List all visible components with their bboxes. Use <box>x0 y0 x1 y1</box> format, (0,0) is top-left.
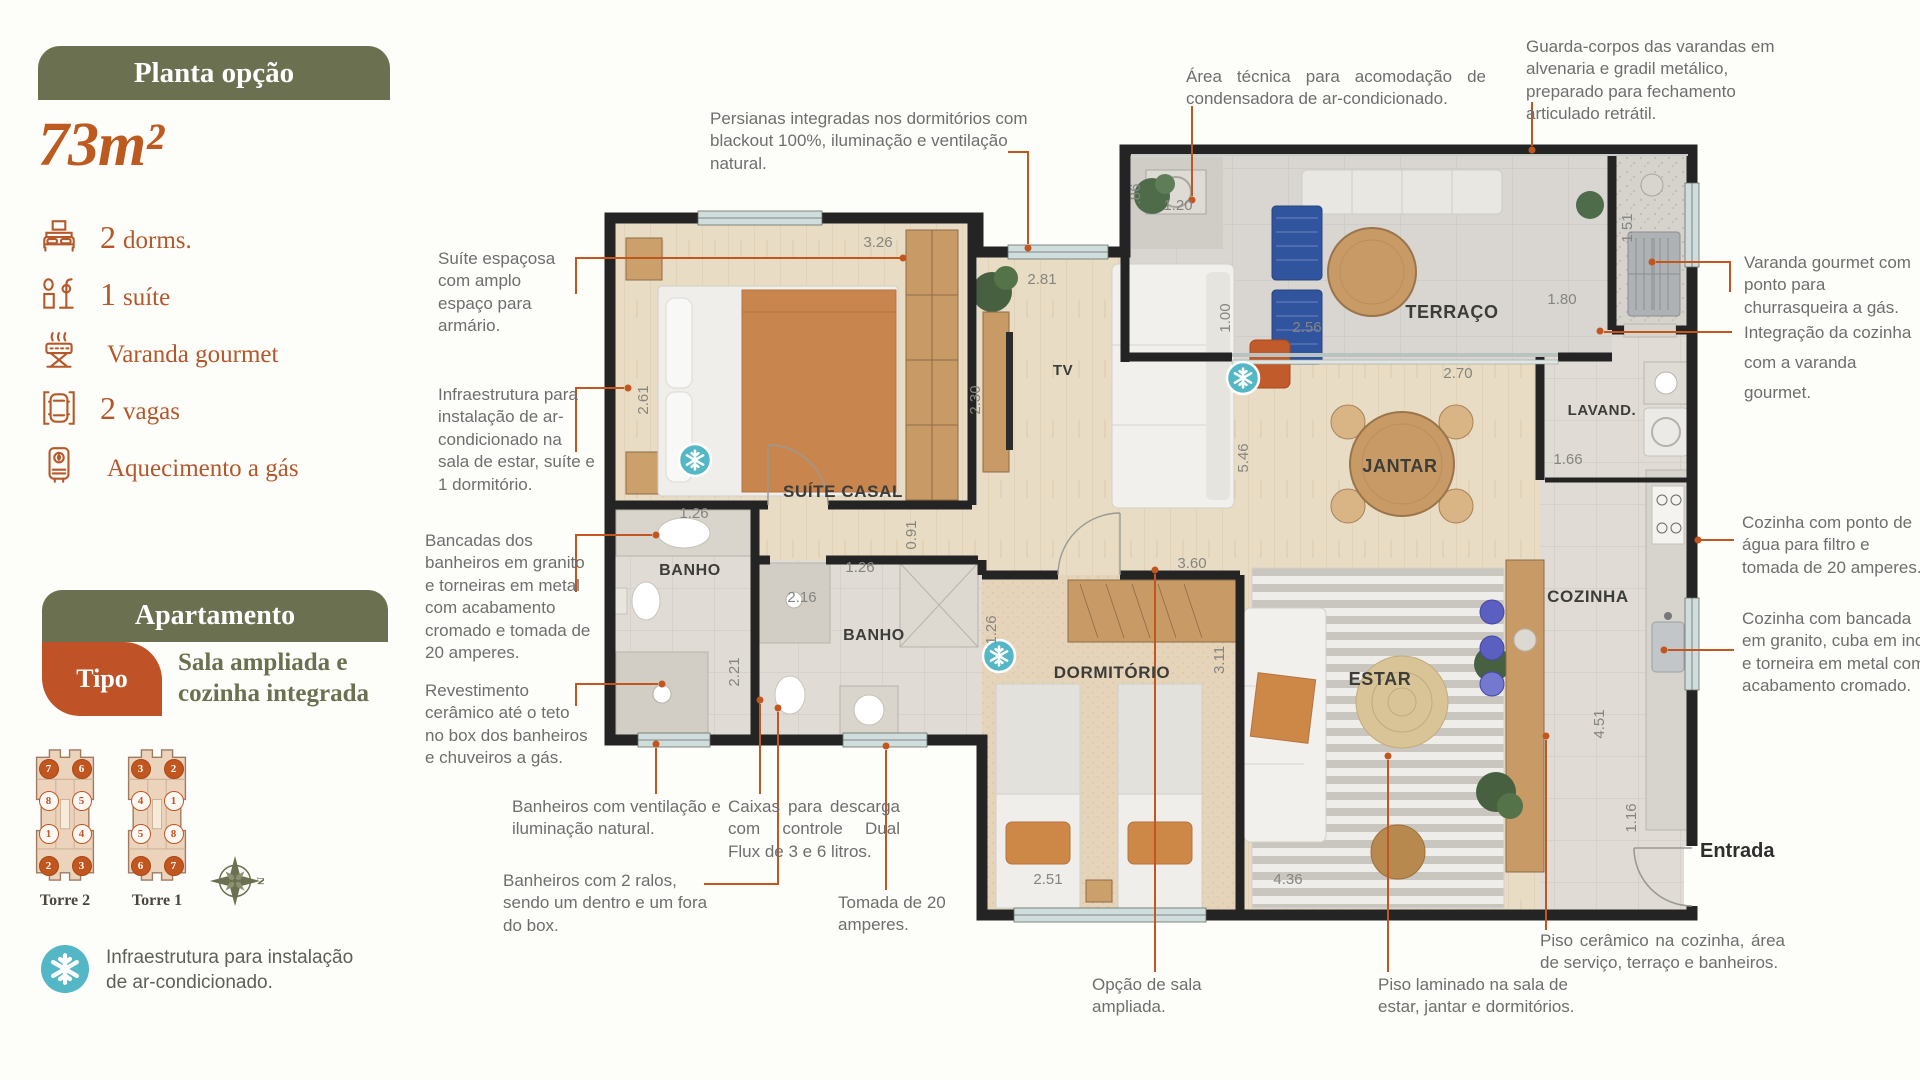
annotation-suite-espacosa: Suíte espaçosa com amplo espaço para arm… <box>438 248 578 338</box>
room-label-suite: SUÍTE CASAL <box>783 482 903 501</box>
dimension-label: 1.20 <box>1163 197 1192 214</box>
dimension-label: 1.26 <box>845 559 874 576</box>
dimension-label: 5.46 <box>1235 443 1252 472</box>
room-label-cozinha: COZINHA <box>1547 587 1629 606</box>
dimension-label: 3.11 <box>1211 646 1228 674</box>
furniture-laundry <box>1644 362 1688 456</box>
dimension-label: 2.30 <box>967 385 984 414</box>
annotation-caixas-descarga: Caixas para descarga com controle Dual F… <box>728 796 900 863</box>
annotation-revestimento: Revestimento cerâmico até o teto no box … <box>425 680 593 770</box>
annotation-tomada: Tomada de 20 amperes. <box>838 892 948 937</box>
room-label-terraco: TERRAÇO <box>1405 302 1498 322</box>
annotation-piso-laminado: Piso laminado na sala de estar, jantar e… <box>1378 974 1593 1019</box>
annotation-varanda-churrasqueira: Varanda gourmet com ponto para churrasqu… <box>1744 252 1916 319</box>
dimension-label: 1.26 <box>983 615 1000 644</box>
dimension-label: 1.51 <box>1619 213 1636 242</box>
furniture-estar <box>1244 568 1510 908</box>
room-label-lavanderia: LAVAND. <box>1568 402 1637 419</box>
dimension-label: .86 <box>1127 184 1144 205</box>
dimension-label: 1.26 <box>679 505 708 522</box>
annotation-integracao-cozinha: Integração da cozinha com a varanda gour… <box>1744 318 1914 407</box>
room-label-jantar: JANTAR <box>1362 456 1437 476</box>
dimension-label: 2.56 <box>1292 319 1321 336</box>
annotation-piso-ceramico: Piso cerâmico na cozinha, área de serviç… <box>1540 930 1785 975</box>
annotation-persianas: Persianas integradas nos dormitórios com… <box>710 108 1040 175</box>
dimension-label: 2.51 <box>1033 871 1062 888</box>
room-label-dormitorio: DORMITÓRIO <box>1054 663 1171 682</box>
floor-plan-page: Planta opção 73m² 2dorms. 1suíte <box>0 0 1920 1080</box>
annotation-bancadas: Bancadas dos banheiros em granito e torn… <box>425 530 593 665</box>
dimension-label: 4.36 <box>1273 871 1302 888</box>
annotation-banheiros-ventilacao: Banheiros com ventilação e iluminação na… <box>512 796 724 841</box>
dimension-label: 2.70 <box>1443 365 1472 382</box>
room-label-tv: TV <box>1053 362 1073 379</box>
annotation-infra-ar: Infraestrutura para instalação de ar-con… <box>438 384 596 496</box>
annotation-cozinha-agua: Cozinha com ponto de água para filtro e … <box>1742 512 1920 579</box>
dimension-label: 2.61 <box>635 385 652 414</box>
room-label-banho-1: BANHO <box>659 562 721 579</box>
dimension-label: 1.16 <box>1623 803 1640 832</box>
dimension-label: 0.91 <box>903 520 920 549</box>
entrance-label: Entrada <box>1700 840 1774 863</box>
dimension-label: 3.26 <box>863 234 892 251</box>
dimension-label: 3.60 <box>1177 555 1206 572</box>
dimension-label: 1.66 <box>1553 451 1582 468</box>
dimension-label: 2.21 <box>726 657 743 686</box>
room-label-banho-2: BANHO <box>843 627 905 644</box>
annotation-opcao-sala: Opção de sala ampliada. <box>1092 974 1228 1019</box>
dimension-label: 2.16 <box>787 589 816 606</box>
dimension-label: 4.51 <box>1591 709 1608 738</box>
dimension-label: 1.00 <box>1217 303 1234 332</box>
annotation-banheiros-ralos: Banheiros com 2 ralos, sendo um dentro e… <box>503 870 721 937</box>
annotation-guarda-corpos: Guarda-corpos das varandas em alvenaria … <box>1526 36 1802 126</box>
annotation-area-tecnica: Área técnica para acomodação de condensa… <box>1186 66 1486 111</box>
dimension-label: 2.81 <box>1027 271 1056 288</box>
room-label-estar: ESTAR <box>1349 669 1412 689</box>
annotation-cozinha-bancada: Cozinha com bancada em granito, cuba em … <box>1742 608 1920 698</box>
ac-badge-living <box>1227 362 1259 394</box>
dimension-label: 1.80 <box>1547 291 1576 308</box>
ac-badge-suite <box>679 444 711 476</box>
